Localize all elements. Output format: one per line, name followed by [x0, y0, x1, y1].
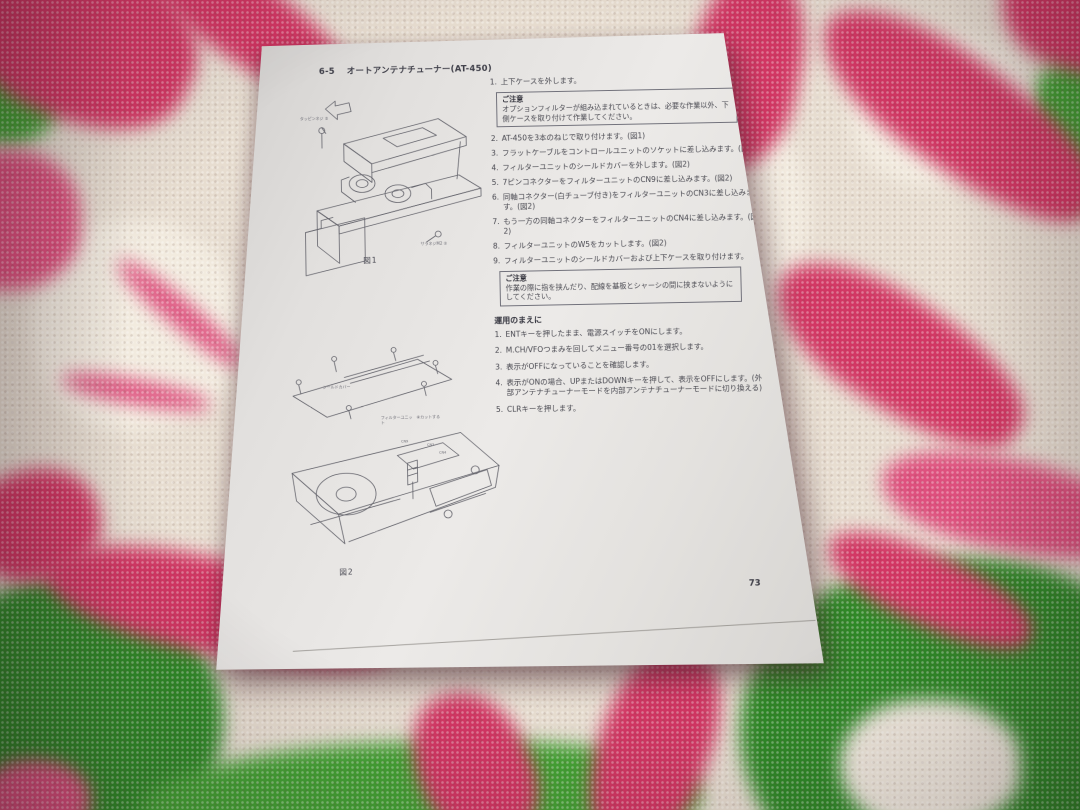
- step-text: 同軸コネクター(白チューブ付き)をフィルターユニットのCN3に差し込みます。(図…: [503, 187, 764, 212]
- step-number: 3.: [491, 149, 502, 159]
- figure-1-drawing: [292, 85, 493, 284]
- operation-step: 4. 表示がONの場合、UPまたはDOWNキーを押して、表示をOFFにします。(…: [495, 373, 768, 399]
- step-text: CLRキーを押します。: [507, 400, 769, 415]
- section-title: オートアンテナチューナー(AT-450): [347, 64, 492, 77]
- step-number: 9.: [493, 256, 504, 266]
- figure-2-cn3-label: CN3: [427, 443, 434, 447]
- figure-2-unit-label: フィルターユニット: [381, 416, 413, 426]
- figure-1-screw-label-bottom: サラネジM2 ②: [421, 242, 448, 247]
- manual-page: 6-5オートアンテナチューナー(AT-450): [205, 20, 830, 675]
- step-text: もう一方の同軸コネクターをフィルターユニットのCN4に差し込みます。(図2): [503, 212, 764, 237]
- install-step: 8. フィルターユニットのW5をカットします。(図2): [493, 237, 765, 252]
- figure-2-drawing: [278, 343, 511, 580]
- install-step: 2. AT-450を3本のねじで取り付けます。(図1): [491, 129, 762, 144]
- figure-1-screw-label-top: タッピンネジ ②: [300, 117, 328, 122]
- step-number: 4.: [495, 378, 506, 399]
- step-number: 1.: [495, 330, 506, 340]
- step-text: フラットケーブルをコントロールユニットのソケットに差し込みます。(図2): [502, 144, 762, 159]
- caution-box-2: ご注意 作業の際に指を挟んだり、配線を基板とシャーシの間に挟まないようにしてくだ…: [499, 266, 742, 306]
- operation-step: 2. M.CH/VFOつまみを回してメニュー番号の01を選択します。: [495, 341, 767, 356]
- operation-step: 5. CLRキーを押します。: [496, 400, 769, 415]
- step-text: M.CH/VFOつまみを回してメニュー番号の01を選択します。: [506, 341, 767, 356]
- photo-scene: 6-5オートアンテナチューナー(AT-450): [0, 0, 1080, 810]
- install-step: 6. 同軸コネクター(白チューブ付き)をフィルターユニットのCN3に差し込みます…: [492, 187, 764, 212]
- page-number: 73: [749, 579, 761, 589]
- paper-sheet: 6-5オートアンテナチューナー(AT-450): [205, 20, 830, 675]
- figure-2-cut-label: ⑧カットする: [417, 415, 441, 420]
- operation-steps: 1. ENTキーを押したまま、電源スイッチをONにします。 2. M.CH/VF…: [495, 325, 769, 415]
- figure-2-cn9-label: CN9: [401, 439, 408, 443]
- step-text: 表示がOFFになっていることを確認します。: [506, 357, 767, 372]
- operation-step: 1. ENTキーを押したまま、電源スイッチをONにします。: [495, 325, 767, 340]
- step-text: ENTキーを押したまま、電源スイッチをONにします。: [505, 325, 766, 340]
- step-number: 5.: [496, 405, 507, 415]
- page-title: 6-5オートアンテナチューナー(AT-450): [319, 62, 492, 77]
- figure-2-cover-label: シールドカバー: [323, 385, 351, 390]
- figure-2-cn4-label: CN4: [439, 451, 446, 455]
- step-number: 5.: [492, 178, 503, 188]
- install-step: 9. フィルターユニットのシールドカバーおよび上下ケースを取り付けます。: [493, 251, 765, 266]
- install-step: 4. フィルターユニットのシールドカバーを外します。(図2): [491, 158, 762, 173]
- operation-step: 3. 表示がOFFになっていることを確認します。: [495, 357, 767, 372]
- caution-box-1: ご注意 オプションフィルターが組み込まれているときは、必要な作業以外、下側ケース…: [496, 87, 738, 127]
- step-text: フィルターユニットのシールドカバーおよび上下ケースを取り付けます。: [504, 251, 765, 266]
- operation-heading: 運用のまえに: [494, 310, 766, 326]
- install-step: 7. もう一方の同軸コネクターをフィルターユニットのCN4に差し込みます。(図2…: [492, 212, 764, 237]
- figure-2-caption: 図2: [339, 566, 353, 577]
- step-number: 6.: [492, 192, 503, 212]
- step-number: 8.: [493, 242, 504, 252]
- caution-text: オプションフィルターが組み込まれているときは、必要な作業以外、下側ケースを取り付…: [502, 100, 732, 123]
- step-number: 3.: [495, 362, 506, 372]
- step-text: 表示がONの場合、UPまたはDOWNキーを押して、表示をOFFにします。(外部ア…: [506, 373, 768, 398]
- step-text: フィルターユニットのシールドカバーを外します。(図2): [502, 158, 762, 173]
- step-number: 2.: [495, 346, 506, 356]
- caution-text: 作業の際に指を挟んだり、配線を基板とシャーシの間に挟まないようにしてください。: [506, 279, 736, 303]
- figure-2: シールドカバー フィルターユニット ⑧カットする CN9 CN3 CN4: [278, 343, 511, 580]
- step-number: 1.: [490, 77, 501, 87]
- figure-1: タッピンネジ ② サラネジM2 ②: [292, 85, 493, 284]
- install-step: 3. フラットケーブルをコントロールユニットのソケットに差し込みます。(図2): [491, 144, 762, 159]
- step-number: 2.: [491, 134, 502, 144]
- step-text: 7ピンコネクターをフィルターユニットのCN9に差し込みます。(図2): [503, 173, 763, 188]
- figure-1-caption: 図1: [363, 255, 377, 266]
- step-text: 上下ケースを外します。: [501, 73, 761, 88]
- step-text: フィルターユニットのW5をカットします。(図2): [504, 237, 765, 252]
- step-number: 4.: [491, 163, 502, 173]
- section-number: 6-5: [319, 67, 335, 77]
- install-step: 1. 上下ケースを外します。: [490, 73, 761, 88]
- step-text: AT-450を3本のねじで取り付けます。(図1): [502, 129, 762, 144]
- instructions-column: 1. 上下ケースを外します。 ご注意 オプションフィルターが組み込まれているとき…: [490, 73, 769, 422]
- step-number: 7.: [492, 217, 503, 237]
- carpet-white-petal: [840, 700, 1020, 810]
- under-sheet-edge: [293, 620, 816, 652]
- install-step: 5. 7ピンコネクターをフィルターユニットのCN9に差し込みます。(図2): [492, 173, 763, 188]
